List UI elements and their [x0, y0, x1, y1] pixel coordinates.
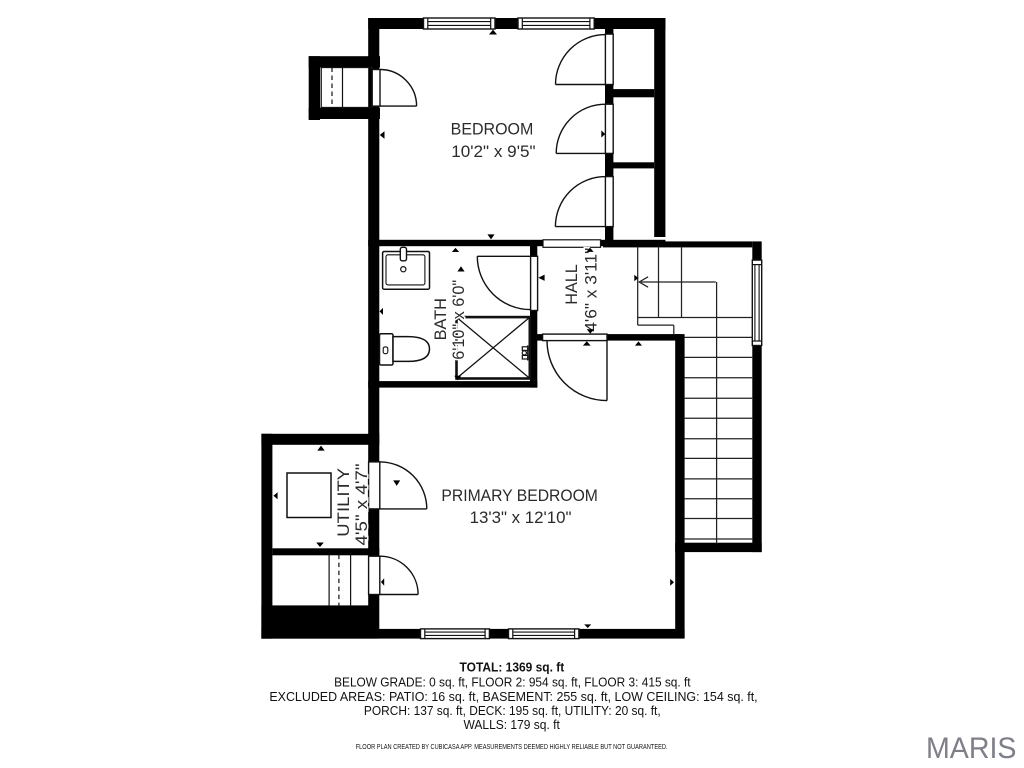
svg-text:UTILITY: UTILITY	[334, 468, 353, 537]
svg-text:BELOW GRADE: 0 sq. ft, FLOOR 2: BELOW GRADE: 0 sq. ft, FLOOR 2: 954 sq. …	[334, 675, 691, 690]
svg-text:HALL: HALL	[562, 264, 581, 305]
svg-text:FLOOR PLAN CREATED BY CUBICASA: FLOOR PLAN CREATED BY CUBICASA APP. MEAS…	[356, 742, 668, 751]
svg-text:BEDROOM: BEDROOM	[451, 119, 534, 138]
svg-text:EXCLUDED AREAS: PATIO: 16 sq.: EXCLUDED AREAS: PATIO: 16 sq. ft, BASEME…	[269, 689, 757, 704]
svg-text:4'5" x 4'7": 4'5" x 4'7"	[352, 464, 371, 546]
svg-text:PRIMARY BEDROOM: PRIMARY BEDROOM	[441, 486, 598, 505]
svg-text:13'3" x 12'10": 13'3" x 12'10"	[470, 508, 572, 527]
svg-text:BATH: BATH	[431, 298, 450, 340]
svg-text:MARIS: MARIS	[926, 732, 1017, 765]
svg-text:TOTAL: 1369 sq. ft: TOTAL: 1369 sq. ft	[460, 660, 565, 675]
svg-text:WALLS: 179 sq. ft: WALLS: 179 sq. ft	[464, 717, 561, 732]
svg-text:4'6" x 3'11": 4'6" x 3'11"	[581, 248, 600, 332]
svg-text:PORCH: 137 sq. ft, DECK: 195 s: PORCH: 137 sq. ft, DECK: 195 sq. ft, UTI…	[364, 703, 661, 718]
svg-text:10'2" x 9'5": 10'2" x 9'5"	[451, 142, 535, 161]
svg-text:6'10" x 6'0": 6'10" x 6'0"	[449, 280, 468, 360]
